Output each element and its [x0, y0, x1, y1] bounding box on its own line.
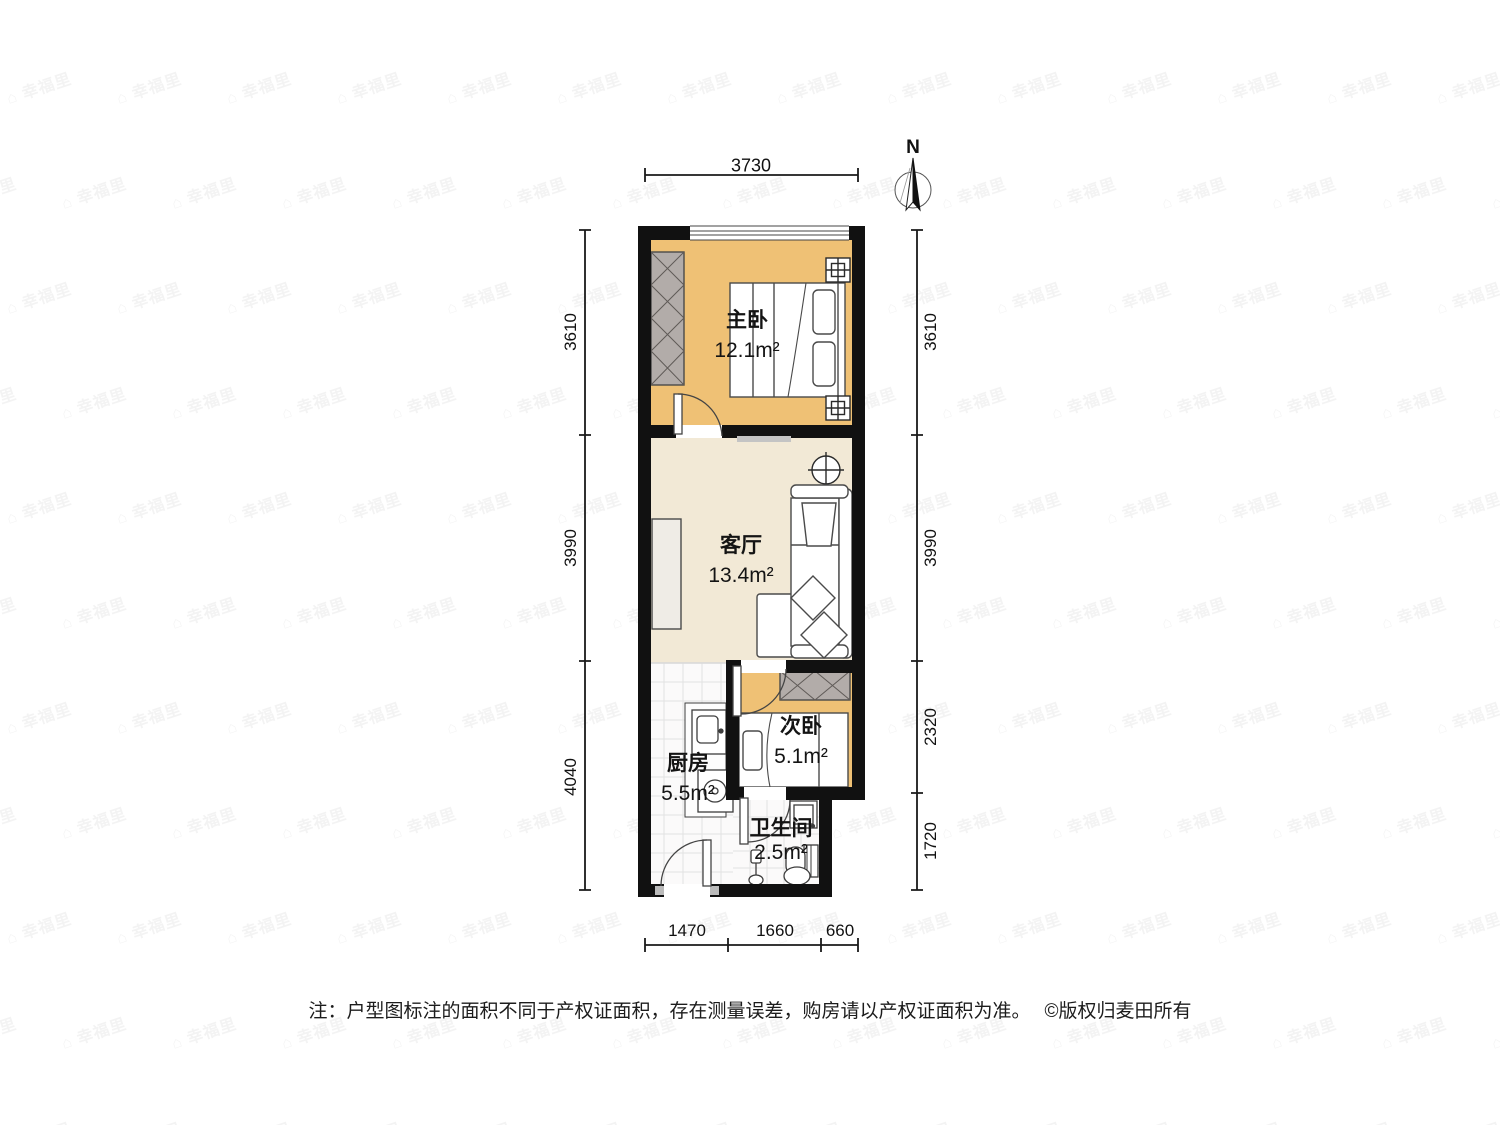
- window-sill: [737, 436, 791, 442]
- dim-label-top: 3730: [731, 156, 771, 177]
- window: [690, 226, 849, 240]
- second-bedroom-label: 次卧 5.1m²: [774, 712, 828, 772]
- dim-label-bottom-3: 660: [826, 921, 854, 941]
- disclaimer-text: 注：户型图标注的面积不同于产权证面积，存在测量误差，购房请以产权证面积为准。: [308, 1001, 1030, 1022]
- ac-outlet-icon: [826, 258, 850, 282]
- disclaimer-note: 注：户型图标注的面积不同于产权证面积，存在测量误差，购房请以产权证面积为准。©版…: [0, 996, 1500, 1023]
- door-opening: [676, 425, 722, 438]
- master-bedroom-label: 主卧 12.1m²: [714, 306, 779, 366]
- kitchen-sink: [692, 710, 726, 754]
- room-name: 客厅: [708, 531, 773, 561]
- wardrobe: [780, 671, 850, 700]
- door-opening: [741, 660, 786, 673]
- door-jamb: [710, 886, 719, 895]
- door-opening: [744, 787, 786, 800]
- door-jamb: [655, 886, 664, 895]
- dim-label-right-3: 2320: [921, 708, 941, 746]
- room-name: 次卧: [774, 712, 828, 742]
- dim-label-left-2: 3990: [561, 529, 581, 567]
- ac-outlet-icon: [826, 396, 850, 420]
- wall-right: [852, 226, 865, 800]
- dim-label-right-1: 3610: [921, 313, 941, 351]
- bathroom-label: 卫生间 2.5m²: [750, 817, 813, 865]
- pillow: [743, 731, 762, 770]
- living-room-label: 客厅 13.4m²: [708, 531, 773, 591]
- copyright-text: ©版权归麦田所有: [1045, 1001, 1192, 1022]
- room-area: 5.5m²: [661, 779, 715, 809]
- floor-plan-page: ⌂ 幸福里⌂ 幸福里⌂ 幸福里⌂ 幸福里⌂ 幸福里⌂ 幸福里⌂ 幸福里⌂ 幸福里…: [0, 0, 1500, 1125]
- sofa-armrest: [791, 485, 848, 498]
- room-area: 12.1m²: [714, 336, 779, 366]
- tv-cabinet: [652, 519, 681, 629]
- dim-label-left-1: 3610: [561, 313, 581, 351]
- compass-needle-white: [906, 158, 913, 210]
- room-area: 5.1m²: [774, 742, 828, 772]
- room-area: 13.4m²: [708, 561, 773, 591]
- pillow: [813, 342, 835, 386]
- dim-label-bottom-2: 1660: [756, 921, 794, 941]
- dim-label-right-4: 1720: [921, 822, 941, 860]
- compass-needle-black: [913, 158, 920, 210]
- room-name: 卫生间: [750, 817, 813, 841]
- room-name: 厨房: [661, 749, 715, 779]
- sofa-cushion: [802, 503, 836, 546]
- wardrobe: [651, 252, 684, 385]
- wall-left: [638, 226, 651, 897]
- dim-label-bottom-1: 1470: [668, 921, 706, 941]
- north-label: N: [906, 137, 920, 159]
- north-compass: [895, 158, 931, 210]
- dim-label-right-2: 3990: [921, 529, 941, 567]
- wall-bathroom-right: [819, 787, 832, 897]
- pillow: [813, 290, 835, 334]
- room-area: 2.5m²: [750, 841, 813, 865]
- room-name: 主卧: [714, 306, 779, 336]
- dim-label-left-3: 4040: [561, 758, 581, 796]
- kitchen-label: 厨房 5.5m²: [661, 749, 715, 809]
